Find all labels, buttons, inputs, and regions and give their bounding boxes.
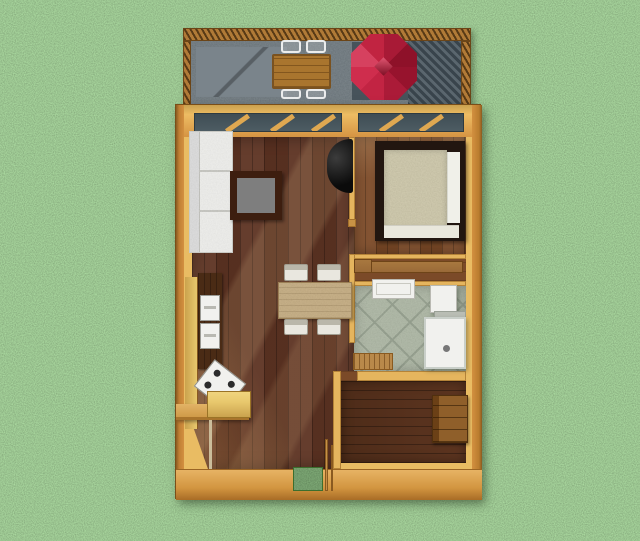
mat-shading xyxy=(294,468,322,490)
sofa-backrest xyxy=(190,132,200,252)
deck-railing-left xyxy=(183,41,191,106)
double-bed xyxy=(375,141,465,241)
bed-blanket xyxy=(384,225,459,238)
bathtub-sink xyxy=(372,279,415,299)
window-brace xyxy=(270,114,295,132)
wall-bathroom-south xyxy=(357,371,466,381)
front-door-jamb xyxy=(331,445,333,491)
burner xyxy=(203,380,213,390)
window-brace xyxy=(379,114,404,132)
wooden-dresser xyxy=(432,395,468,443)
bed-mattress xyxy=(384,150,447,229)
deck-chair xyxy=(281,89,301,99)
wooden-bath-mat xyxy=(353,353,393,370)
kitchen-tall-cabinet xyxy=(198,273,222,369)
bathroom-wall-cabinet xyxy=(430,285,457,313)
floor-plan-scene xyxy=(0,0,640,541)
doorway-threshold xyxy=(341,371,357,381)
front-door-mat xyxy=(293,467,323,491)
patio-umbrella xyxy=(351,34,417,100)
closet-storage-shelf xyxy=(363,261,463,273)
window-brace xyxy=(419,114,444,132)
mattress-texture xyxy=(384,150,447,229)
bedroom-window xyxy=(358,113,464,132)
deck-railing-right xyxy=(461,41,471,106)
dining-chair xyxy=(317,264,341,281)
shower-enclosure xyxy=(424,317,466,369)
wall-south xyxy=(176,469,482,500)
umbrella-pole xyxy=(374,57,392,75)
shower-drain xyxy=(443,345,450,352)
wall-west xyxy=(176,105,184,500)
front-door-leaf xyxy=(325,439,328,491)
dining-chair xyxy=(284,264,308,281)
burner xyxy=(226,379,236,389)
deck-railing-top xyxy=(183,28,471,41)
sofa-cushion-divider xyxy=(199,170,230,172)
living-room-window xyxy=(194,113,342,132)
house xyxy=(175,104,481,499)
white-sofa xyxy=(189,131,233,253)
kitchen-island-counter xyxy=(207,391,251,418)
dining-chair xyxy=(317,319,341,335)
window-brace xyxy=(225,114,250,132)
coffee-table xyxy=(230,171,282,220)
built-in-oven xyxy=(200,295,220,321)
sofa-cushion-divider xyxy=(199,210,230,212)
table-texture xyxy=(279,283,351,318)
door-post xyxy=(348,219,356,227)
deck-patio xyxy=(183,28,471,106)
deck-chair xyxy=(281,40,301,53)
burner xyxy=(212,368,222,378)
window-brace xyxy=(311,114,336,132)
wall-backroom-west xyxy=(333,371,341,469)
built-in-microwave xyxy=(200,323,220,349)
wall-east xyxy=(472,105,482,500)
deck-chair xyxy=(306,89,326,99)
deck-chair xyxy=(306,40,326,53)
outdoor-table xyxy=(272,54,331,89)
support-post xyxy=(209,420,212,469)
closet-storage-box xyxy=(354,259,372,273)
dining-table xyxy=(278,282,352,319)
dining-chair xyxy=(284,319,308,335)
bed-pillow xyxy=(447,152,460,223)
